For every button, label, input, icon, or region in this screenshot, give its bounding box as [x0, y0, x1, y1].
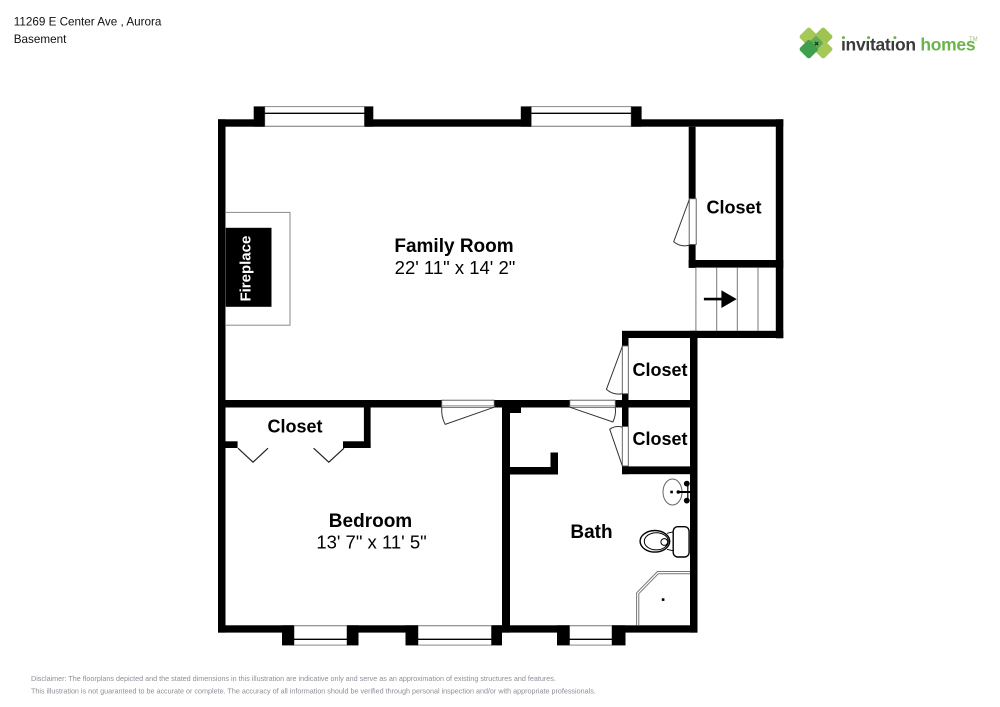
svg-text:Closet: Closet [267, 417, 322, 437]
svg-text:Basement: Basement [14, 33, 67, 46]
svg-text:13' 7" x 11' 5": 13' 7" x 11' 5" [316, 531, 426, 552]
svg-text:This illustration is not guara: This illustration is not guaranteed to b… [31, 686, 596, 695]
svg-text:Bedroom: Bedroom [329, 511, 412, 532]
svg-text:11269 E Center Ave , Aurora: 11269 E Center Ave , Aurora [14, 16, 162, 29]
svg-text:Closet: Closet [632, 429, 687, 449]
svg-text:Family Room: Family Room [394, 236, 513, 257]
svg-text:TM: TM [969, 37, 978, 43]
svg-text:Bath: Bath [570, 522, 612, 543]
svg-text:Disclaimer: The floorplans dep: Disclaimer: The floorplans depicted and … [31, 674, 556, 683]
svg-text:Closet: Closet [632, 360, 687, 380]
svg-text:Fireplace: Fireplace [238, 236, 255, 302]
svg-text:Closet: Closet [706, 197, 761, 217]
svg-text:ınvıtatıon homes: ınvıtatıon homes [841, 35, 976, 55]
svg-text:22' 11" x 14' 2": 22' 11" x 14' 2" [395, 257, 516, 278]
